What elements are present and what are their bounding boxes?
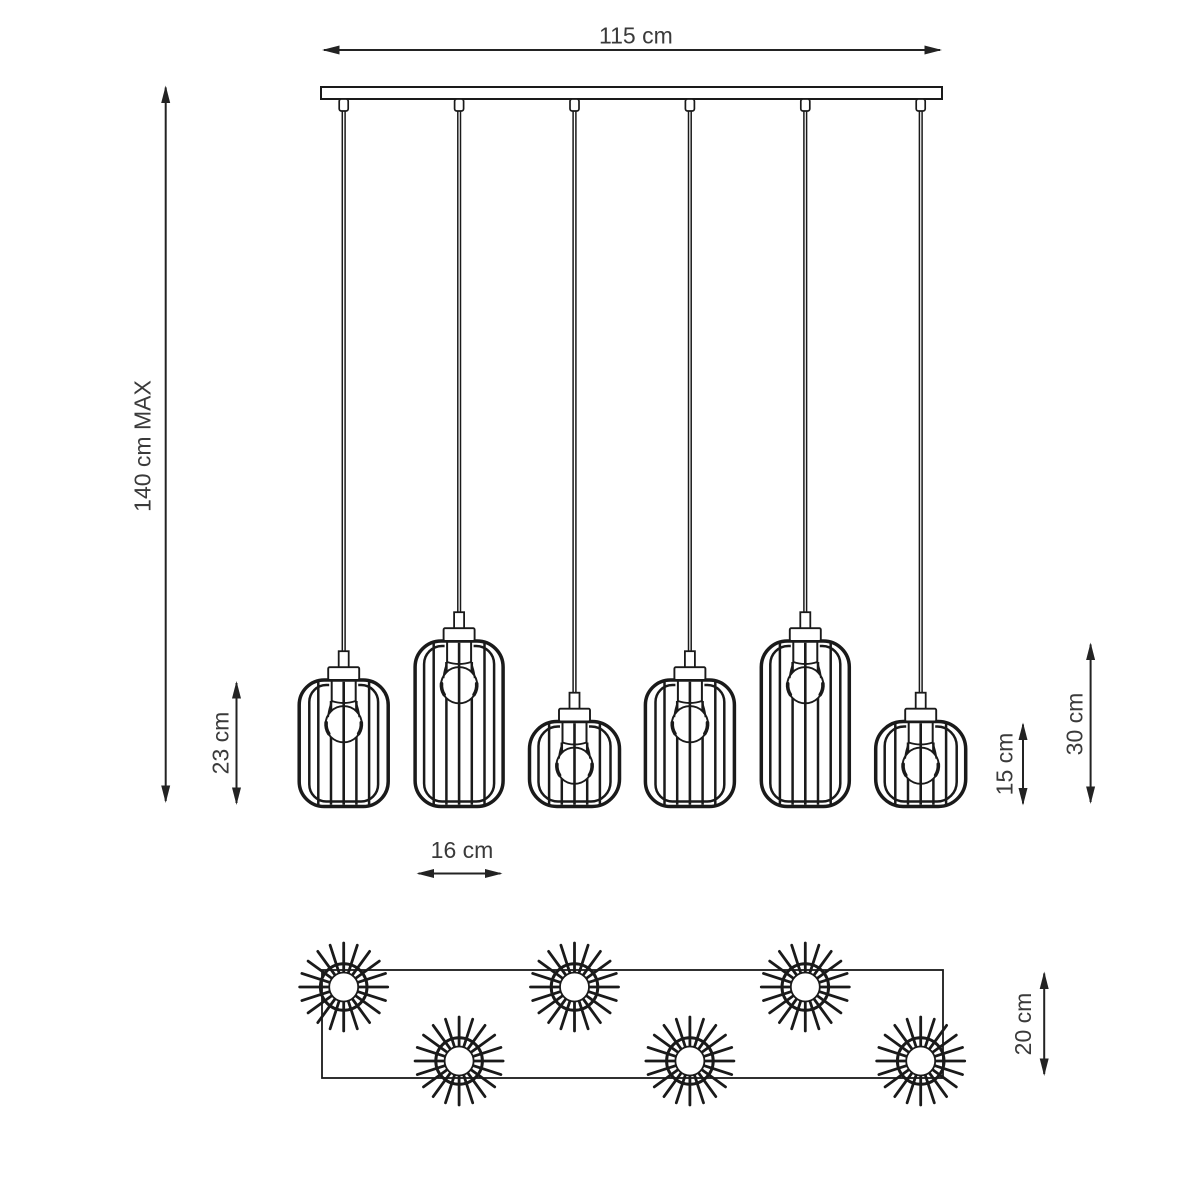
svg-text:140 cm MAX: 140 cm MAX <box>130 380 156 512</box>
svg-text:30 cm: 30 cm <box>1061 693 1087 756</box>
svg-text:15 cm: 15 cm <box>992 733 1018 796</box>
svg-text:23 cm: 23 cm <box>207 712 233 775</box>
svg-text:20 cm: 20 cm <box>1010 993 1036 1056</box>
svg-text:16 cm: 16 cm <box>431 837 494 863</box>
svg-text:115 cm: 115 cm <box>599 23 673 49</box>
